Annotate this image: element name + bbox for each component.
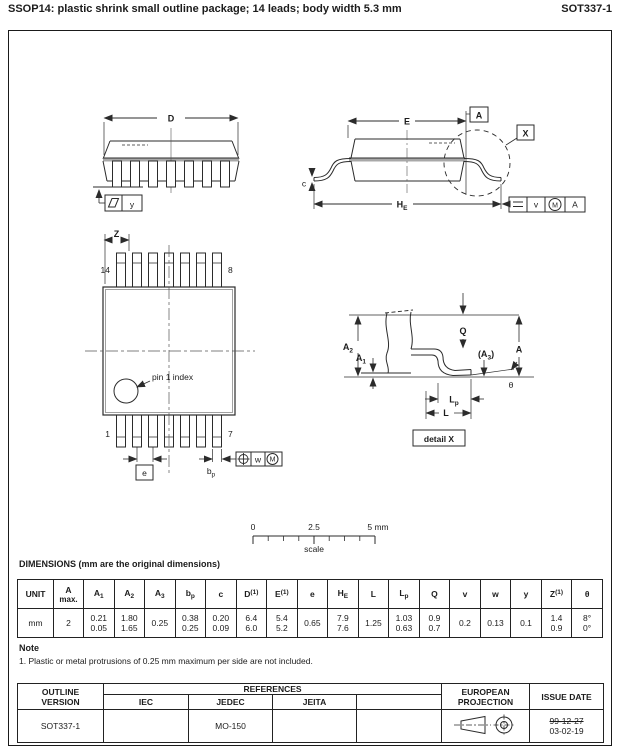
issue-date-value: 99-12-27 03-02-19 <box>530 710 604 743</box>
col-d: D(1) <box>236 580 267 609</box>
d-dim-label: D <box>168 114 175 124</box>
issue-date-new: 03-02-19 <box>530 726 603 736</box>
dim-value-cell: 8°0° <box>572 609 603 638</box>
footer-header-row: OUTLINEVERSION REFERENCES EUROPEANPROJEC… <box>18 684 604 695</box>
dim-value-cell: 0.2 <box>450 609 481 638</box>
jedec-value: MO-150 <box>189 710 273 743</box>
x-ref-label: X <box>522 129 528 139</box>
scale-tick-end: 5 mm <box>367 522 388 532</box>
jeita-header: JEITA <box>273 695 357 710</box>
dim-value-cell: 2 <box>54 609 84 638</box>
dim-value-cell: 0.90.7 <box>419 609 450 638</box>
equals-symbol-icon <box>513 202 523 207</box>
outline-version-value: SOT337-1 <box>18 710 104 743</box>
e-pitch-label: e <box>142 468 147 478</box>
col-he: HE <box>328 580 359 609</box>
lp-dim-label: Lp <box>449 395 459 408</box>
frame1-a-label: A <box>572 200 578 210</box>
col-a2: A2 <box>114 580 145 609</box>
pin1-index-circle <box>114 379 138 403</box>
col-w: w <box>480 580 511 609</box>
col-lp: Lp <box>389 580 420 609</box>
e-dim-label: E <box>404 117 410 127</box>
projection-symbol-cell <box>442 710 530 743</box>
footer-data-row: SOT337-1 MO-150 99-12-27 03-02-19 <box>18 710 604 743</box>
pin8-label: 8 <box>228 265 233 275</box>
dim-value-cell: 1.030.63 <box>389 609 420 638</box>
c-dim-label: c <box>302 179 307 189</box>
col-theta: θ <box>572 580 603 609</box>
theta-dim-label: θ <box>509 380 514 390</box>
dim-value-cell: 0.65 <box>297 609 328 638</box>
dim-value-cell: 0.13 <box>480 609 511 638</box>
bp-dim-label: bp <box>207 466 216 479</box>
dim-header-row: UNIT Amax. A1 A2 A3 bp c D(1) E(1) e HE … <box>18 580 603 609</box>
jedec-header: JEDEC <box>189 695 273 710</box>
dim-value-cell: 0.25 <box>145 609 176 638</box>
note-item: 1. Plastic or metal protrusions of 0.25 … <box>19 656 313 666</box>
scale-tick-mid: 2.5 <box>308 522 320 532</box>
empty-ref-value <box>357 710 442 743</box>
col-q: Q <box>419 580 450 609</box>
end-view-drawing <box>312 107 585 212</box>
pin14-label: 14 <box>101 265 111 275</box>
side-view-pins <box>113 161 230 187</box>
dim-value-cell: 1.25 <box>358 609 389 638</box>
dim-value-cell: 0.210.05 <box>84 609 115 638</box>
drawing-frame: D y E A X HE c v M A Z 14 8 1 7 pin 1 in… <box>8 30 612 746</box>
footer-table: OUTLINEVERSION REFERENCES EUROPEANPROJEC… <box>17 683 604 743</box>
iec-header: IEC <box>104 695 189 710</box>
dimensions-table: UNIT Amax. A1 A2 A3 bp c D(1) E(1) e HE … <box>17 579 603 638</box>
note-block: Note 1. Plastic or metal protrusions of … <box>19 643 313 666</box>
a1-dim-label: A1 <box>356 353 367 366</box>
detail-x-drawing <box>344 293 534 446</box>
col-z: Z(1) <box>541 580 572 609</box>
european-projection-header: EUROPEANPROJECTION <box>442 684 530 710</box>
dim-value-cell: 0.1 <box>511 609 542 638</box>
dim-value-cell: 0.200.09 <box>206 609 237 638</box>
page-header: SSOP14: plastic shrink small outline pac… <box>8 3 612 15</box>
col-c: c <box>206 580 237 609</box>
q-dim-label: Q <box>459 326 466 336</box>
outline-version-header: OUTLINEVERSION <box>18 684 104 710</box>
dim-value-cell: 1.40.9 <box>541 609 572 638</box>
col-e-cap: E(1) <box>267 580 298 609</box>
a-dim-label: A <box>516 345 523 355</box>
detail-x-caption: detail X <box>424 434 455 444</box>
a2-dim-label: A2 <box>343 342 354 355</box>
dim-value-cell: 7.97.6 <box>328 609 359 638</box>
first-angle-projection-icon <box>451 712 521 738</box>
col-v: v <box>450 580 481 609</box>
dim-value-row: mm 2 0.210.05 1.801.65 0.25 0.380.25 0.2… <box>18 609 603 638</box>
col-a3: A3 <box>145 580 176 609</box>
true-position-symbol-icon <box>238 453 250 465</box>
iec-value <box>104 710 189 743</box>
col-y: y <box>511 580 542 609</box>
note-heading: Note <box>19 643 313 653</box>
frame2-w-label: w <box>254 455 262 465</box>
pin7-label: 7 <box>228 429 233 439</box>
col-bp: bp <box>175 580 206 609</box>
doc-id: SOT337-1 <box>561 3 612 15</box>
dim-value-cell: mm <box>18 609 54 638</box>
a-datum-label: A <box>476 111 483 121</box>
scale-caption: scale <box>304 544 324 554</box>
l-dim-label: L <box>443 408 449 418</box>
frame1-v-label: v <box>534 200 539 210</box>
dim-value-cell: 6.46.0 <box>236 609 267 638</box>
dim-value-cell: 0.380.25 <box>175 609 206 638</box>
frame1-m-label: M <box>552 203 558 210</box>
top-view-drawing <box>85 234 282 480</box>
detail-x-circle <box>444 130 510 196</box>
z-dim-label: Z <box>114 229 120 239</box>
dimensions-heading: DIMENSIONS (mm are the original dimensio… <box>19 559 220 569</box>
package-outline-drawing: D y E A X HE c v M A Z 14 8 1 7 pin 1 in… <box>9 31 611 556</box>
page-title: SSOP14: plastic shrink small outline pac… <box>8 3 402 15</box>
col-a-max: Amax. <box>54 580 84 609</box>
he-dim-label: HE <box>397 200 409 213</box>
scale-bar <box>253 536 375 544</box>
side-view-drawing <box>93 118 239 211</box>
dim-value-cell: 1.801.65 <box>114 609 145 638</box>
flatness-symbol-icon <box>109 199 119 208</box>
pin1-label: 1 <box>105 429 110 439</box>
references-header: REFERENCES <box>104 684 442 695</box>
col-unit: UNIT <box>18 580 54 609</box>
jeita-value <box>273 710 357 743</box>
col-l: L <box>358 580 389 609</box>
col-e: e <box>297 580 328 609</box>
a3-dim-label: (A3) <box>478 349 494 362</box>
frame2-m-label: M <box>270 457 276 464</box>
pin1-index-label: pin 1 index <box>152 372 194 382</box>
issue-date-header: ISSUE DATE <box>530 684 604 710</box>
issue-date-old: 99-12-27 <box>530 716 603 726</box>
y-datum-label: y <box>130 200 135 210</box>
empty-ref-header <box>357 695 442 710</box>
dim-value-cell: 5.45.2 <box>267 609 298 638</box>
scale-tick-0: 0 <box>251 522 256 532</box>
col-a1: A1 <box>84 580 115 609</box>
